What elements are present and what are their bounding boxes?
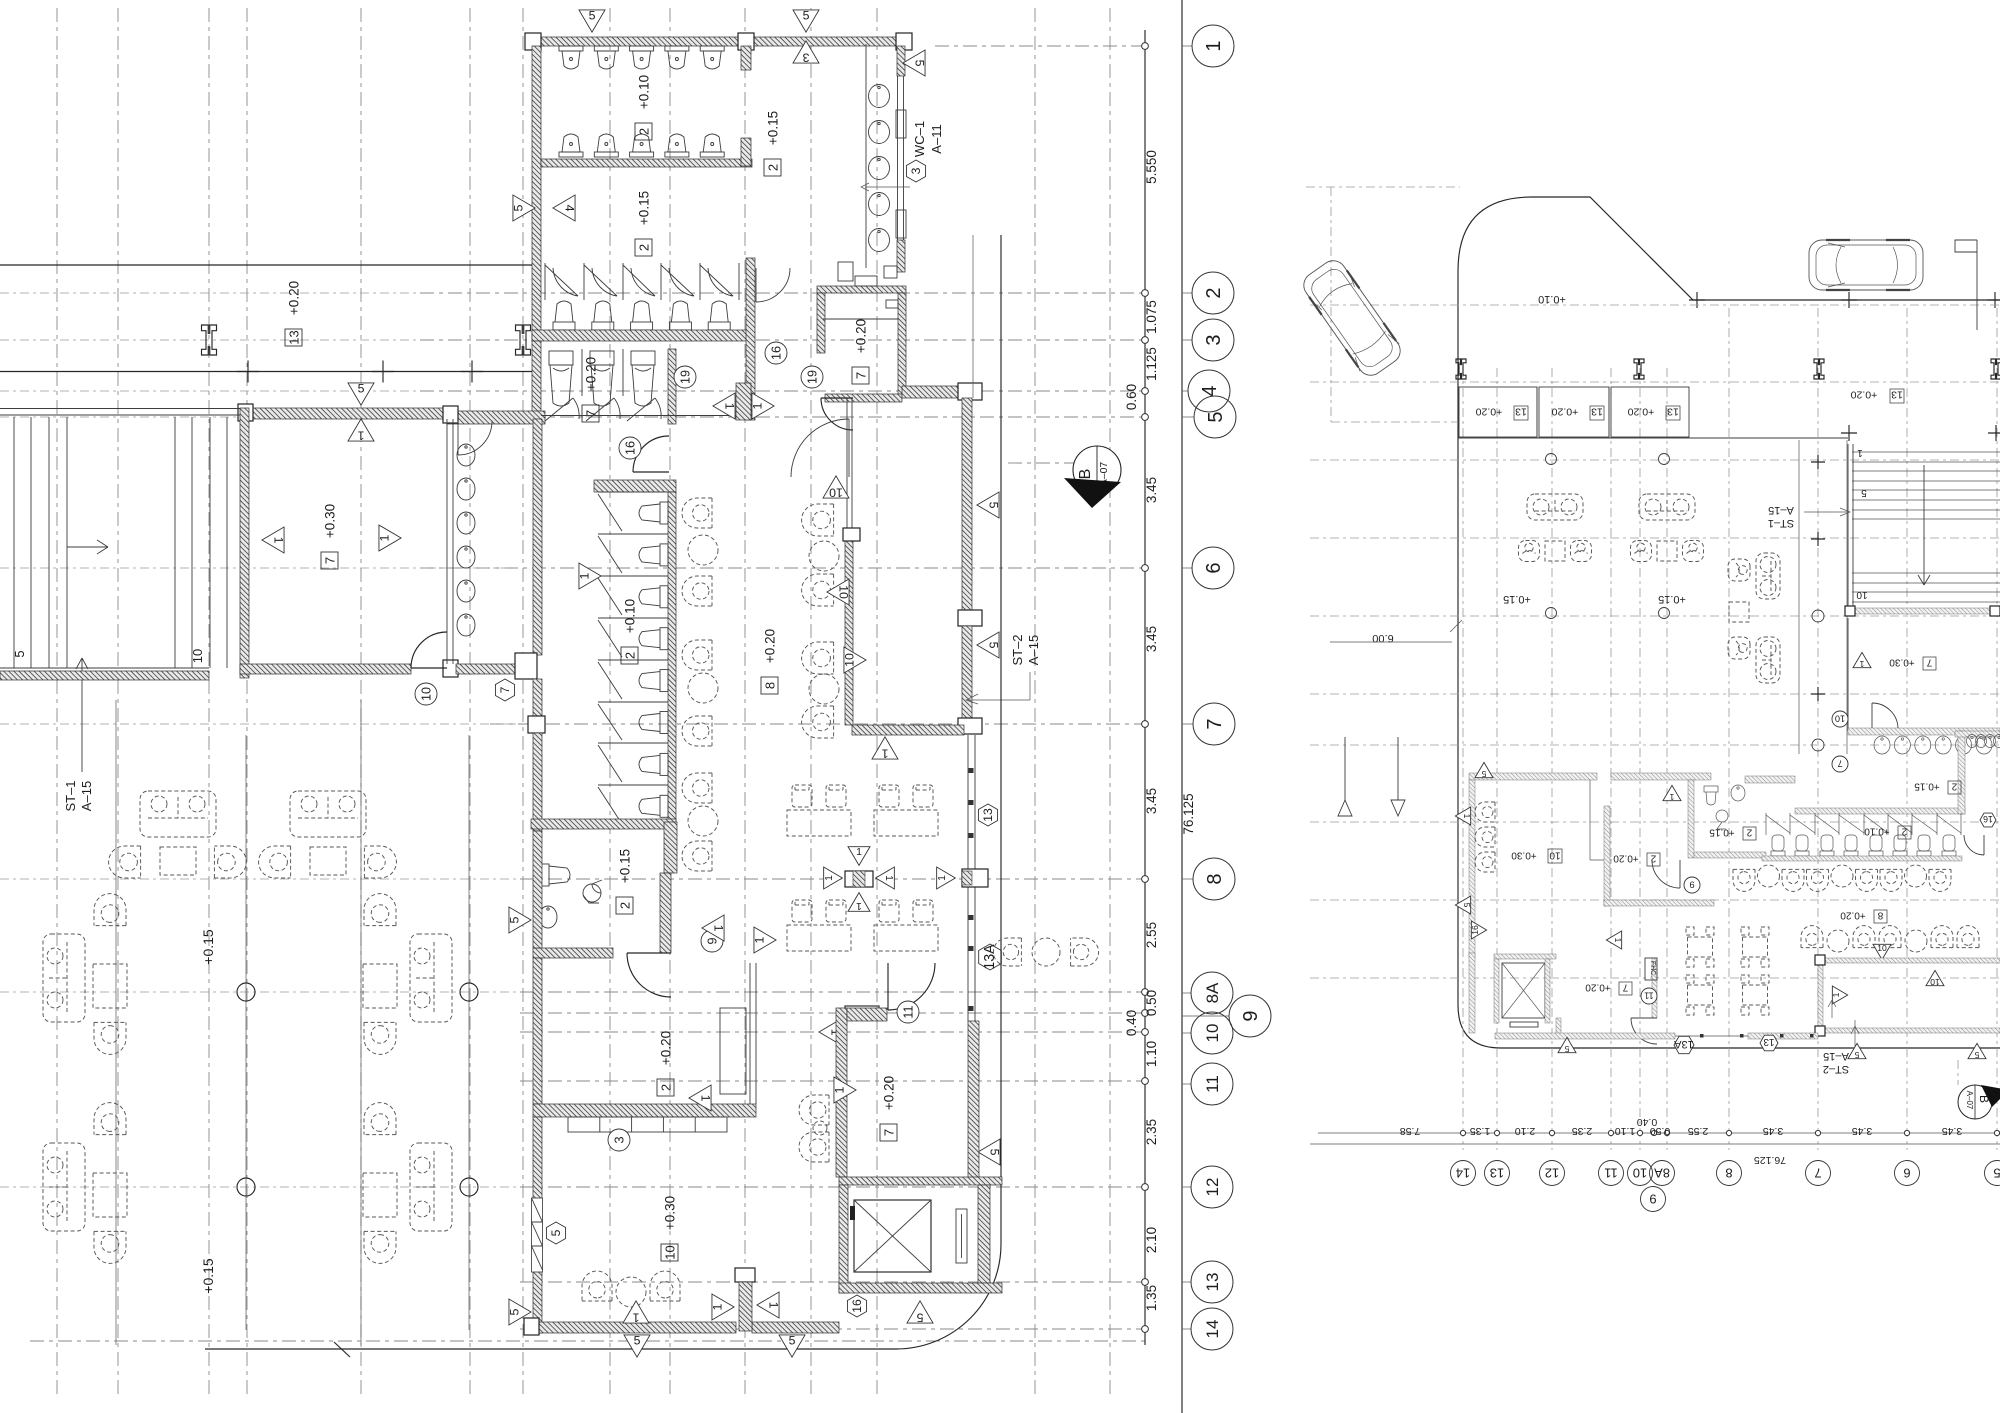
svg-text:5: 5 [1462, 903, 1472, 908]
svg-text:13: 13 [1203, 1273, 1222, 1292]
svg-text:8: 8 [1877, 910, 1883, 921]
svg-text:12: 12 [1545, 1165, 1559, 1180]
svg-text:1: 1 [722, 403, 736, 410]
svg-text:A–15: A–15 [1026, 635, 1041, 665]
svg-text:7: 7 [498, 686, 512, 693]
svg-text:11: 11 [1644, 991, 1654, 1001]
svg-text:2: 2 [659, 1084, 674, 1091]
svg-text:1: 1 [711, 925, 725, 932]
svg-text:ST–2: ST–2 [1010, 634, 1025, 665]
svg-text:+0.10: +0.10 [637, 75, 652, 109]
svg-text:1.075: 1.075 [1144, 300, 1159, 334]
svg-text:7: 7 [323, 557, 338, 564]
svg-text:+0.15: +0.15 [1503, 593, 1531, 605]
svg-text:0.50: 0.50 [1144, 990, 1159, 1016]
svg-text:4: 4 [1199, 385, 1221, 396]
svg-text:3.45: 3.45 [1144, 626, 1159, 652]
svg-text:9: 9 [1689, 880, 1694, 890]
svg-text:+0.15: +0.15 [1914, 781, 1940, 792]
svg-text:2.35: 2.35 [1572, 1125, 1593, 1137]
svg-text:5.550: 5.550 [1144, 150, 1159, 184]
svg-text:4: 4 [562, 205, 576, 212]
svg-text:1: 1 [632, 1310, 639, 1324]
svg-text:14: 14 [1456, 1165, 1470, 1180]
svg-text:13: 13 [981, 808, 995, 822]
svg-text:10: 10 [1856, 589, 1868, 600]
svg-text:5: 5 [634, 1334, 641, 1348]
svg-text:3: 3 [1203, 334, 1225, 345]
svg-text:7: 7 [1622, 982, 1628, 993]
svg-text:2.10: 2.10 [1144, 1227, 1159, 1253]
svg-text:+0.30: +0.30 [323, 504, 338, 538]
svg-text:16: 16 [850, 1299, 864, 1313]
svg-text:1.10: 1.10 [1615, 1125, 1636, 1137]
svg-text:0.60: 0.60 [1124, 384, 1139, 410]
svg-text:+0.15: +0.15 [766, 111, 781, 145]
svg-text:1: 1 [856, 900, 862, 911]
svg-text:2.55: 2.55 [1688, 1125, 1709, 1137]
svg-text:16: 16 [1470, 925, 1480, 935]
svg-text:1: 1 [578, 572, 592, 579]
svg-text:3.45: 3.45 [1144, 477, 1159, 503]
svg-text:19: 19 [679, 370, 693, 384]
svg-text:1: 1 [1613, 938, 1623, 943]
svg-text:A–15: A–15 [79, 781, 94, 811]
svg-text:+0.10: +0.10 [623, 599, 638, 633]
svg-text:1: 1 [856, 847, 862, 858]
svg-text:7: 7 [1926, 657, 1932, 668]
svg-text:+0.15: +0.15 [1658, 593, 1686, 605]
svg-text:5: 5 [986, 642, 1000, 649]
svg-text:A–15: A–15 [1823, 1050, 1849, 1062]
svg-text:7: 7 [882, 1129, 897, 1136]
svg-text:10: 10 [1835, 714, 1845, 724]
svg-text:A–07: A–07 [1965, 1091, 1974, 1110]
svg-text:FHC.: FHC. [1649, 961, 1656, 977]
svg-text:10: 10 [190, 649, 205, 663]
svg-text:5: 5 [1481, 769, 1486, 779]
svg-text:5: 5 [789, 1334, 796, 1348]
svg-text:+0.30: +0.30 [1511, 850, 1537, 861]
svg-text:2: 2 [637, 128, 652, 135]
svg-text:5: 5 [549, 1229, 563, 1236]
svg-text:13: 13 [1591, 406, 1603, 418]
svg-text:+0.20: +0.20 [1476, 406, 1503, 418]
svg-text:11: 11 [902, 1005, 916, 1018]
svg-text:0.50: 0.50 [1650, 1125, 1671, 1137]
svg-text:5: 5 [987, 1149, 1001, 1156]
svg-text:3: 3 [909, 167, 923, 174]
svg-text:2.35: 2.35 [1144, 1119, 1159, 1145]
svg-text:11: 11 [1203, 1075, 1222, 1093]
svg-text:2: 2 [1746, 827, 1752, 838]
svg-text:+0.15: +0.15 [1709, 827, 1735, 838]
svg-text:16: 16 [1983, 814, 1993, 824]
svg-text:+0.30: +0.30 [663, 1196, 678, 1230]
svg-text:5: 5 [508, 916, 522, 923]
svg-text:3: 3 [802, 50, 809, 64]
svg-text:7.58: 7.58 [1400, 1125, 1421, 1137]
svg-text:7: 7 [854, 372, 869, 379]
svg-text:+0.15: +0.15 [200, 1258, 216, 1294]
svg-text:5: 5 [358, 382, 365, 396]
svg-text:5: 5 [916, 1310, 923, 1324]
svg-text:2: 2 [766, 164, 781, 171]
svg-text:+0.10: +0.10 [1864, 826, 1890, 837]
svg-text:7: 7 [1814, 1165, 1821, 1180]
svg-text:8: 8 [1725, 1165, 1732, 1180]
svg-text:5: 5 [1854, 1050, 1859, 1060]
svg-text:9: 9 [706, 937, 720, 944]
svg-text:5: 5 [1205, 411, 1227, 422]
svg-text:7: 7 [1204, 718, 1226, 729]
svg-text:5: 5 [1974, 1050, 1979, 1060]
svg-text:9: 9 [1649, 1191, 1656, 1206]
svg-text:13: 13 [1891, 389, 1903, 401]
svg-text:1: 1 [753, 936, 767, 943]
svg-text:7: 7 [584, 410, 599, 417]
svg-text:10: 10 [843, 653, 857, 667]
svg-text:2.10: 2.10 [1515, 1125, 1536, 1137]
svg-text:1: 1 [357, 428, 364, 442]
svg-text:2: 2 [1901, 826, 1907, 837]
svg-text:13: 13 [1490, 1165, 1504, 1180]
svg-text:+0.20: +0.20 [1840, 910, 1866, 921]
svg-text:13A: 13A [1674, 1038, 1694, 1050]
svg-text:1.35: 1.35 [1470, 1125, 1491, 1137]
svg-text:10: 10 [829, 485, 843, 499]
svg-text:5: 5 [1861, 487, 1867, 498]
svg-text:2.55: 2.55 [1144, 922, 1159, 948]
svg-text:3.45: 3.45 [1852, 1125, 1873, 1137]
svg-text:10: 10 [1549, 850, 1561, 861]
svg-text:2: 2 [637, 244, 652, 251]
svg-text:B: B [1077, 469, 1094, 480]
svg-text:ST–1: ST–1 [1768, 517, 1794, 529]
svg-text:3: 3 [613, 1136, 627, 1143]
svg-text:14: 14 [1203, 1320, 1222, 1339]
svg-text:+0.20: +0.20 [1552, 406, 1579, 418]
svg-text:2: 2 [1951, 781, 1957, 792]
svg-text:+0.20: +0.20 [287, 281, 302, 315]
svg-text:6: 6 [1903, 1165, 1910, 1180]
svg-text:1: 1 [824, 875, 835, 881]
svg-text:1: 1 [1203, 40, 1225, 51]
svg-text:1.125: 1.125 [1144, 347, 1159, 381]
svg-text:+0.30: +0.30 [1889, 657, 1915, 668]
svg-text:1: 1 [1831, 992, 1841, 997]
svg-text:+0.10: +0.10 [1538, 293, 1566, 305]
svg-text:3.45: 3.45 [1144, 788, 1159, 814]
svg-text:8A: 8A [1654, 1165, 1670, 1180]
svg-text:+0.20: +0.20 [1628, 406, 1655, 418]
svg-text:13A: 13A [982, 944, 998, 970]
svg-text:5: 5 [912, 60, 926, 67]
svg-text:5: 5 [803, 9, 810, 23]
svg-text:16: 16 [770, 346, 784, 360]
svg-text:19: 19 [806, 370, 820, 384]
svg-text:5: 5 [512, 204, 526, 211]
svg-text:5: 5 [1993, 1165, 2000, 1180]
svg-text:13: 13 [1667, 406, 1679, 418]
svg-text:1: 1 [751, 402, 765, 409]
svg-text:6: 6 [1203, 562, 1225, 573]
svg-text:1: 1 [378, 534, 392, 541]
svg-text:13: 13 [1515, 406, 1527, 418]
svg-text:5: 5 [12, 650, 27, 657]
svg-text:7: 7 [1837, 759, 1842, 769]
svg-text:+0.15: +0.15 [200, 929, 216, 965]
svg-text:+0.20: +0.20 [659, 1031, 674, 1065]
svg-text:1.35: 1.35 [1144, 1285, 1159, 1311]
svg-text:2: 2 [1650, 853, 1656, 864]
svg-text:5: 5 [986, 502, 1000, 509]
svg-text:5: 5 [589, 9, 596, 23]
svg-text:2: 2 [1203, 287, 1225, 298]
svg-text:1: 1 [1859, 659, 1864, 669]
svg-text:1: 1 [937, 875, 948, 881]
svg-text:10: 10 [663, 1245, 678, 1259]
svg-text:+0.15: +0.15 [637, 191, 652, 225]
svg-text:+0.20: +0.20 [854, 319, 869, 353]
svg-text:13: 13 [287, 330, 302, 344]
svg-text:+0.15: +0.15 [618, 849, 633, 883]
svg-text:1: 1 [711, 1303, 725, 1310]
svg-text:12: 12 [1203, 1178, 1222, 1197]
svg-text:1: 1 [883, 875, 894, 881]
svg-text:10: 10 [836, 585, 850, 599]
svg-text:1: 1 [881, 746, 888, 760]
svg-text:1: 1 [1462, 814, 1472, 819]
svg-text:ST–2: ST–2 [1823, 1063, 1849, 1075]
svg-text:10: 10 [1203, 1024, 1222, 1043]
svg-text:3.45: 3.45 [1942, 1125, 1963, 1137]
svg-text:+0.20: +0.20 [763, 629, 778, 663]
svg-text:1: 1 [833, 1086, 847, 1093]
svg-text:1: 1 [698, 1095, 712, 1102]
svg-text:A–11: A–11 [929, 124, 944, 153]
svg-text:10: 10 [1930, 977, 1940, 987]
svg-text:8A: 8A [1203, 982, 1222, 1003]
svg-text:13: 13 [1763, 1036, 1774, 1047]
svg-text:WC–1: WC–1 [912, 121, 927, 157]
svg-text:8: 8 [763, 682, 778, 689]
svg-text:1: 1 [1857, 447, 1863, 458]
svg-text:1: 1 [1669, 792, 1674, 802]
svg-text:9: 9 [1240, 1010, 1262, 1021]
svg-text:8: 8 [1204, 873, 1226, 884]
svg-text:1: 1 [766, 1302, 780, 1309]
svg-text:5: 5 [508, 1308, 522, 1315]
svg-text:0.40: 0.40 [1124, 1010, 1139, 1036]
svg-text:2: 2 [618, 902, 633, 909]
svg-text:+0.20: +0.20 [584, 357, 599, 391]
svg-text:+0.20: +0.20 [1851, 389, 1878, 401]
svg-text:10: 10 [1877, 943, 1887, 953]
svg-text:3.45: 3.45 [1763, 1125, 1784, 1137]
svg-text:5: 5 [1564, 1044, 1569, 1054]
svg-text:ST–1: ST–1 [63, 780, 78, 811]
svg-text:10: 10 [420, 687, 434, 701]
svg-text:1.10: 1.10 [1144, 1041, 1159, 1067]
svg-text:1: 1 [271, 537, 285, 544]
svg-text:11: 11 [1604, 1165, 1618, 1180]
svg-text:+0.20: +0.20 [1585, 982, 1611, 993]
svg-text:+0.20: +0.20 [882, 1076, 897, 1110]
svg-text:+0.20: +0.20 [1613, 853, 1639, 864]
svg-text:16: 16 [624, 441, 638, 455]
svg-text:A–15: A–15 [1768, 504, 1794, 516]
svg-text:2: 2 [623, 652, 638, 659]
svg-text:10: 10 [1633, 1165, 1647, 1180]
svg-text:76.125: 76.125 [1181, 793, 1196, 834]
svg-text:76.125: 76.125 [1754, 1154, 1786, 1166]
